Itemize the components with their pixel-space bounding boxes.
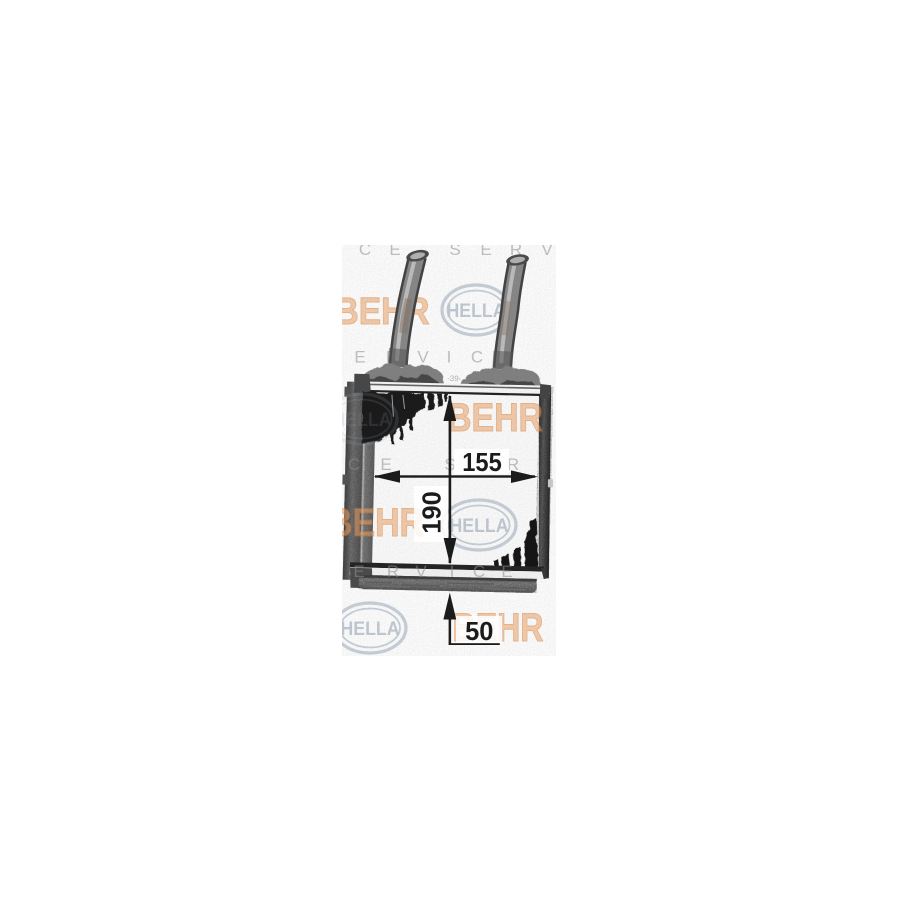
svg-text:50: 50 bbox=[465, 618, 493, 646]
svg-text:190: 190 bbox=[419, 491, 447, 534]
svg-text:155: 155 bbox=[462, 449, 502, 477]
